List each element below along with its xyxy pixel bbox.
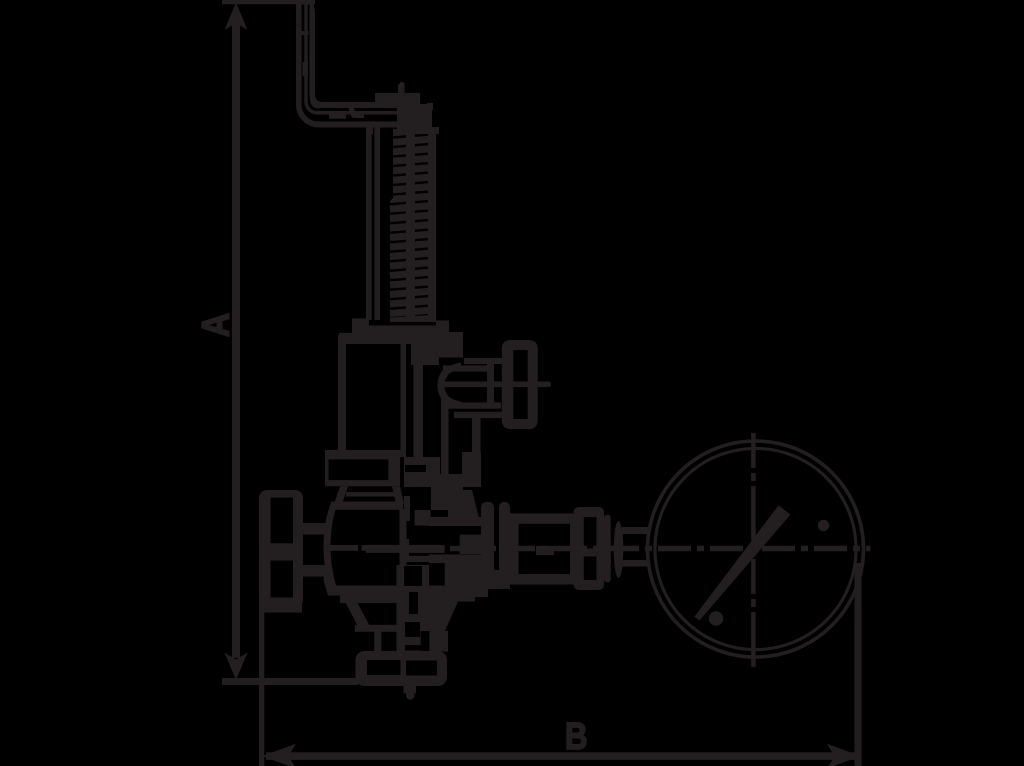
svg-text:B: B <box>565 716 588 758</box>
svg-text:A: A <box>196 313 238 337</box>
